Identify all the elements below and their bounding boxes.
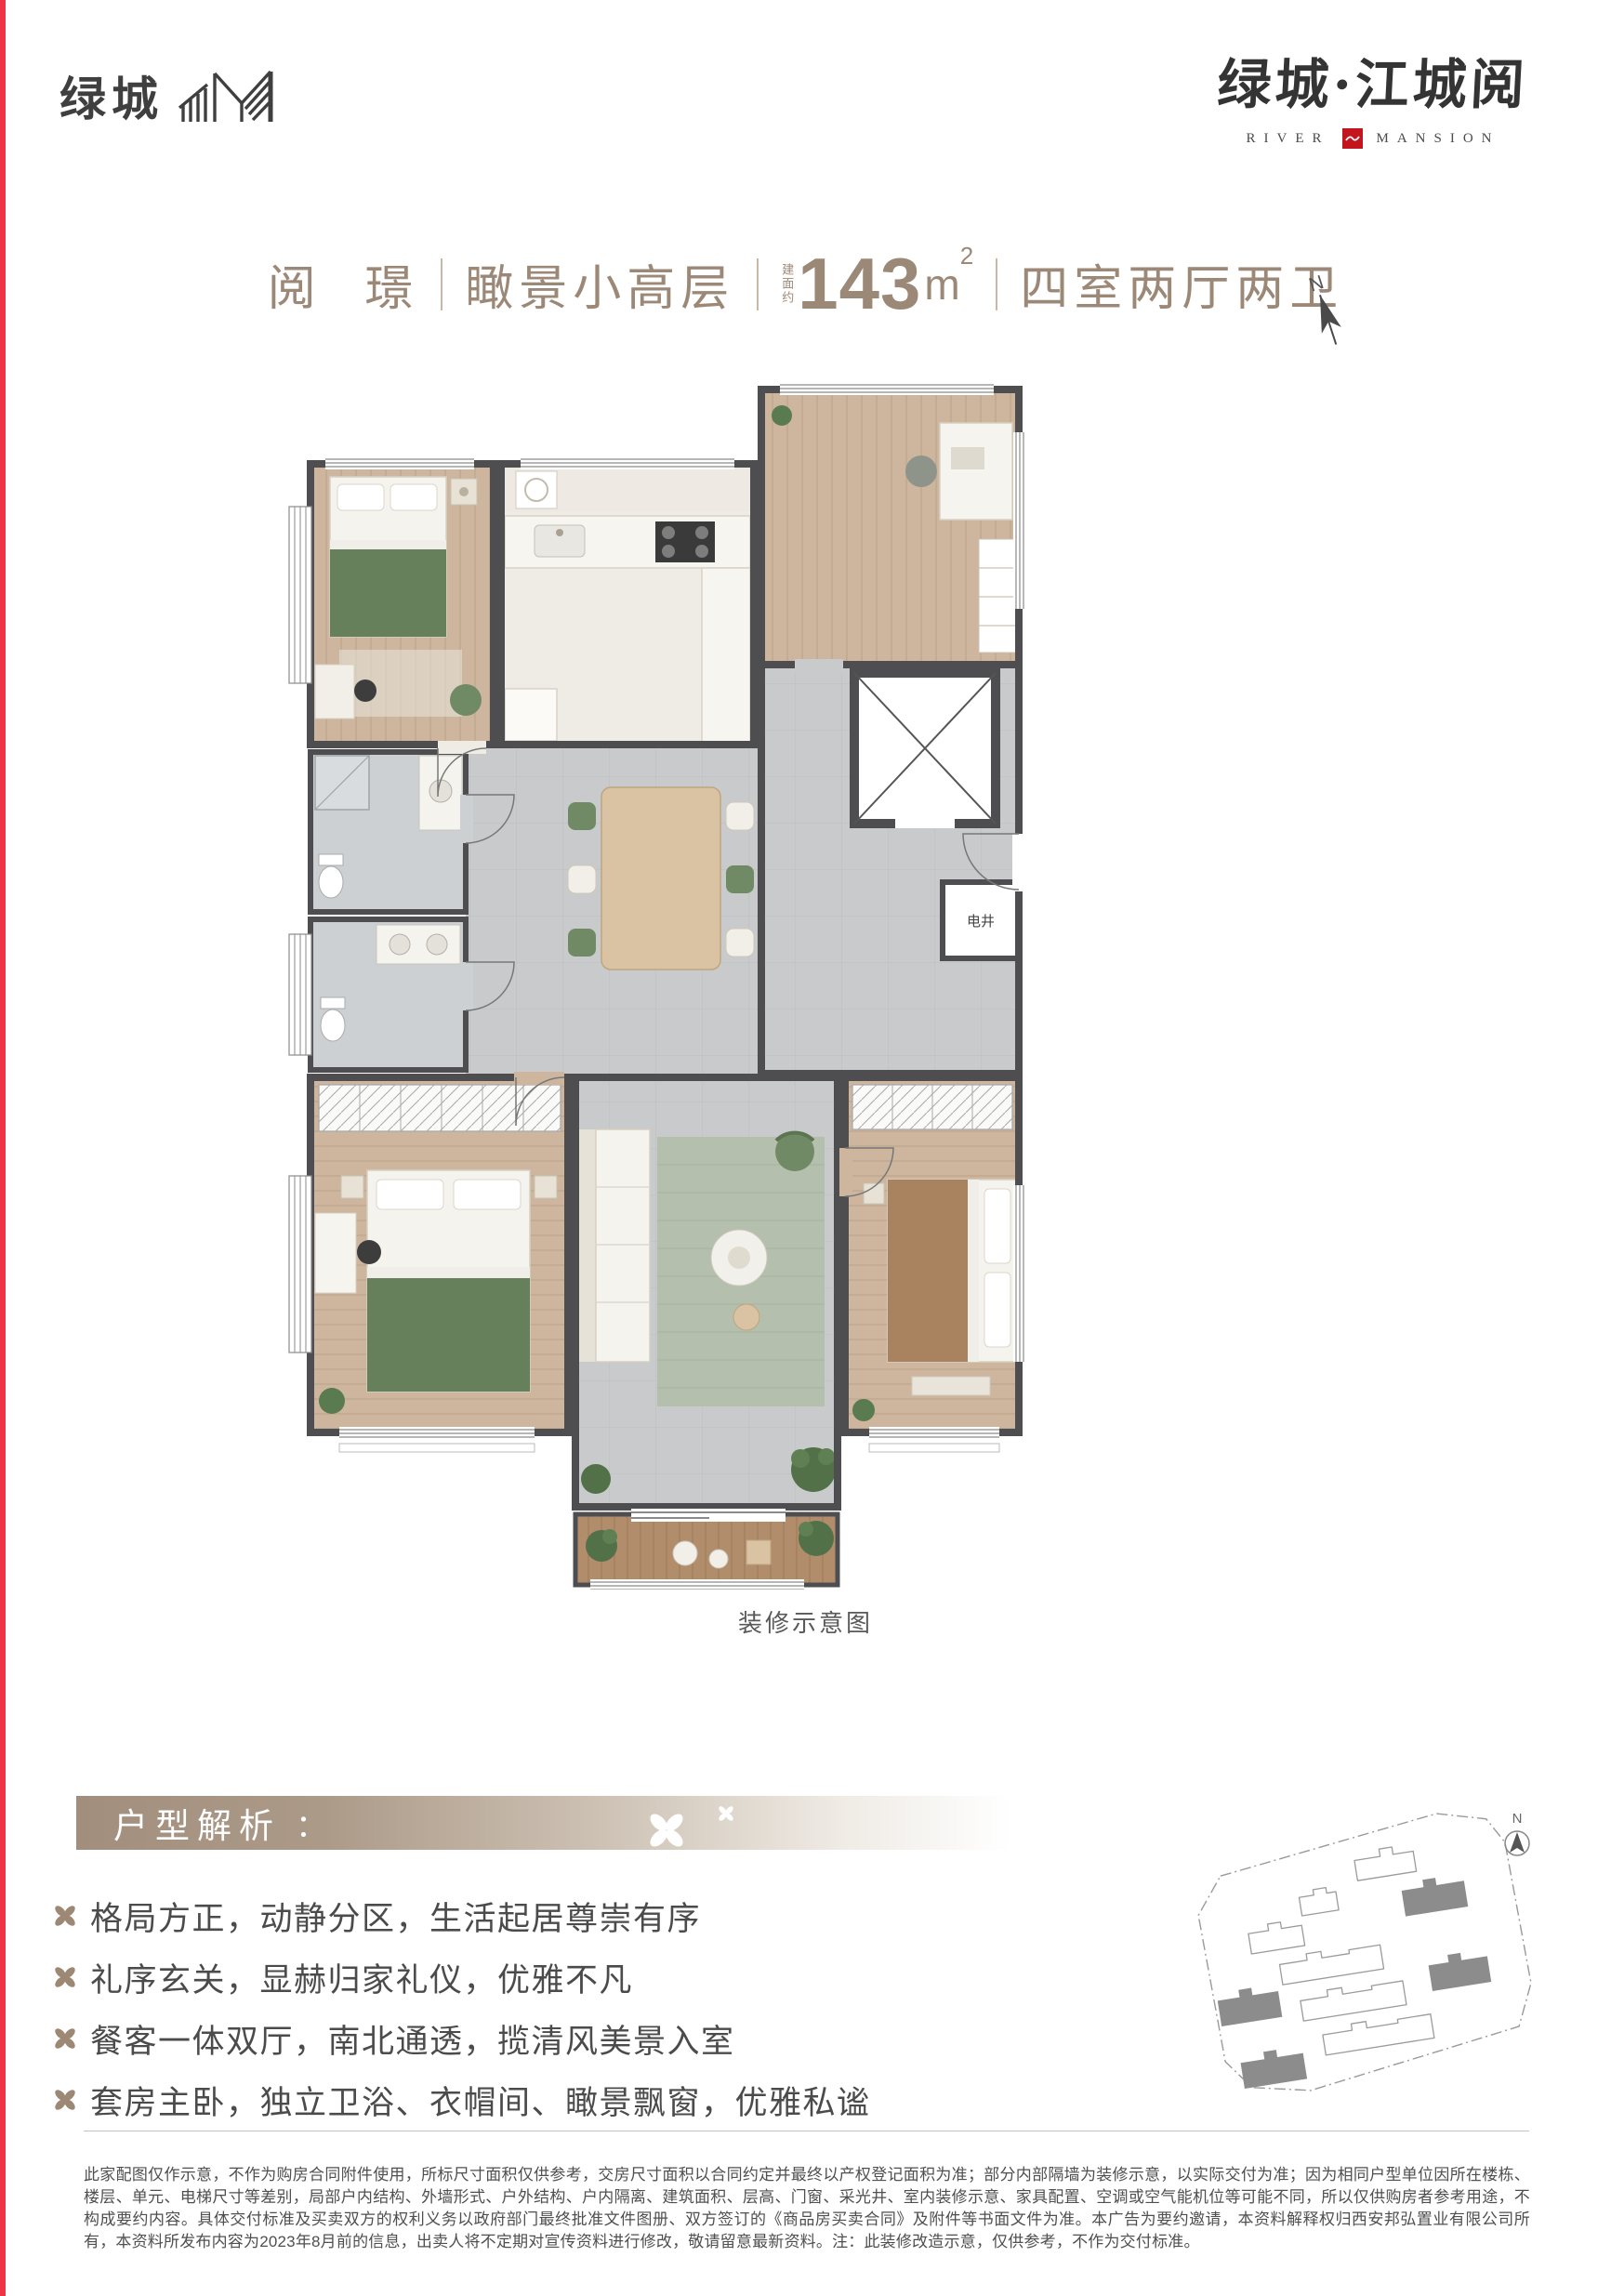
list-item: 格局方正，动静分区，生活起居尊崇有序 bbox=[51, 1885, 871, 1946]
analysis-heading: 户型解析 bbox=[113, 1798, 281, 1848]
feature-text: 礼序玄关，显赫归家礼仪，优雅不凡 bbox=[90, 1954, 633, 2001]
clover-bullet-icon bbox=[51, 1902, 79, 1930]
list-item: 餐客一体双厅，南北通透，揽清风美景入室 bbox=[51, 2008, 871, 2069]
list-item: 套房主卧，独立卫浴、衣帽间、瞰景飘窗，优雅私谧 bbox=[51, 2069, 871, 2131]
area-value: 143 bbox=[798, 251, 921, 316]
unit-type: 瞰景小高层 bbox=[465, 249, 734, 319]
project-name-calligraphy: 绿城·江城阅 bbox=[1195, 41, 1552, 119]
clover-bullet-icon bbox=[51, 2086, 79, 2114]
clover-bullet-icon bbox=[51, 2025, 79, 2052]
greentown-mountain-icon bbox=[178, 61, 283, 123]
river-mansion-row: RIVER MANSION bbox=[1196, 128, 1550, 149]
list-item: 礼序玄关，显赫归家礼仪，优雅不凡 bbox=[51, 1946, 871, 2008]
floor-plan-drawing: 电井 bbox=[237, 358, 1037, 1590]
mansion-text: MANSION bbox=[1376, 131, 1499, 147]
plan-compass-icon: N bbox=[1287, 271, 1367, 357]
area-unit: m bbox=[924, 259, 959, 310]
feature-text: 套房主卧，独立卫浴、衣帽间、瞰景飘窗，优雅私谧 bbox=[90, 2077, 871, 2124]
red-seal-wave-icon bbox=[1342, 128, 1363, 149]
plan-compass-label: N bbox=[1306, 271, 1327, 297]
shaft-label: 电井 bbox=[967, 914, 995, 930]
unit-name: 阅 璟 bbox=[268, 249, 418, 319]
title-divider bbox=[441, 258, 442, 310]
analysis-colon: ： bbox=[296, 1801, 327, 1846]
siteplan-compass-icon: N bbox=[1505, 1811, 1529, 1855]
floor-plan: 电井 bbox=[237, 358, 1037, 1590]
river-text: RIVER bbox=[1246, 131, 1329, 147]
greentown-logo-text: 绿城 bbox=[59, 76, 164, 123]
building-outlines bbox=[1238, 1844, 1443, 2065]
feature-text: 餐客一体双厅，南北通透，揽清风美景入室 bbox=[90, 2015, 735, 2063]
title-divider bbox=[996, 258, 997, 310]
flower-decoration-icon bbox=[643, 1807, 690, 1854]
plan-caption: 装修示意图 bbox=[0, 1604, 1611, 1639]
clover-bullet-icon bbox=[51, 1963, 79, 1991]
brochure-page: 绿城 绿城·江城阅 RIVER MANSION 阅 璟 瞰景小高层 bbox=[0, 0, 1611, 2296]
title-divider bbox=[757, 258, 759, 310]
legal-disclaimer: 此家配图仅作示意，不作为购房合同附件使用，所标尺寸面积仅供参考，交房尺寸面积以合… bbox=[84, 2164, 1530, 2254]
greentown-logo: 绿城 bbox=[59, 61, 283, 123]
left-red-border bbox=[0, 0, 6, 2296]
dining-furniture bbox=[568, 787, 754, 970]
footer-divider bbox=[84, 2131, 1529, 2131]
siteplan-compass-label: N bbox=[1512, 1811, 1523, 1827]
site-plan: N bbox=[1179, 1806, 1551, 2120]
feature-text: 格局方正，动静分区，生活起居尊崇有序 bbox=[90, 1893, 701, 1940]
project-logo: 绿城·江城阅 RIVER MANSION bbox=[1196, 41, 1550, 149]
unit-title-row: 阅 璟 瞰景小高层 建面约 143 m 2 四室两厅两卫 bbox=[0, 249, 1611, 319]
highlighted-buildings bbox=[1204, 1872, 1501, 2091]
analysis-banner: 户型解析 ： bbox=[76, 1796, 1060, 1850]
unit-area: 建面约 143 m 2 bbox=[781, 251, 973, 316]
flower-decoration-icon bbox=[716, 1803, 736, 1824]
area-prefix: 建面约 bbox=[781, 263, 793, 305]
area-superscript: 2 bbox=[960, 242, 973, 271]
feature-list: 格局方正，动静分区，生活起居尊崇有序 礼序玄关，显赫归家礼仪，优雅不凡 餐客一体… bbox=[51, 1885, 871, 2131]
